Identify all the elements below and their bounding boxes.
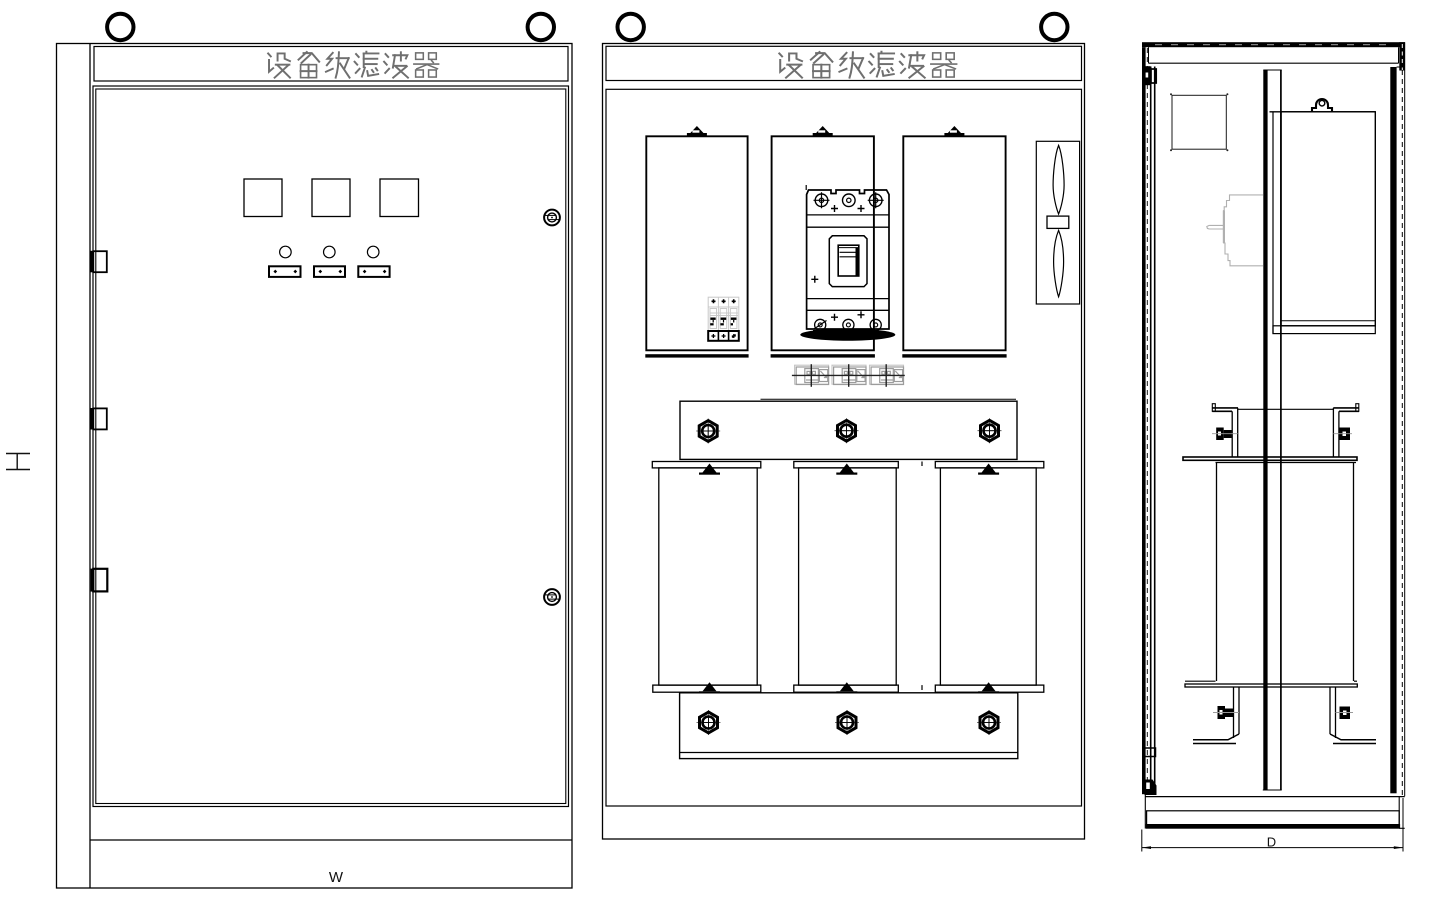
svg-text:W: W — [329, 869, 344, 886]
svg-text:D: D — [1267, 835, 1276, 850]
